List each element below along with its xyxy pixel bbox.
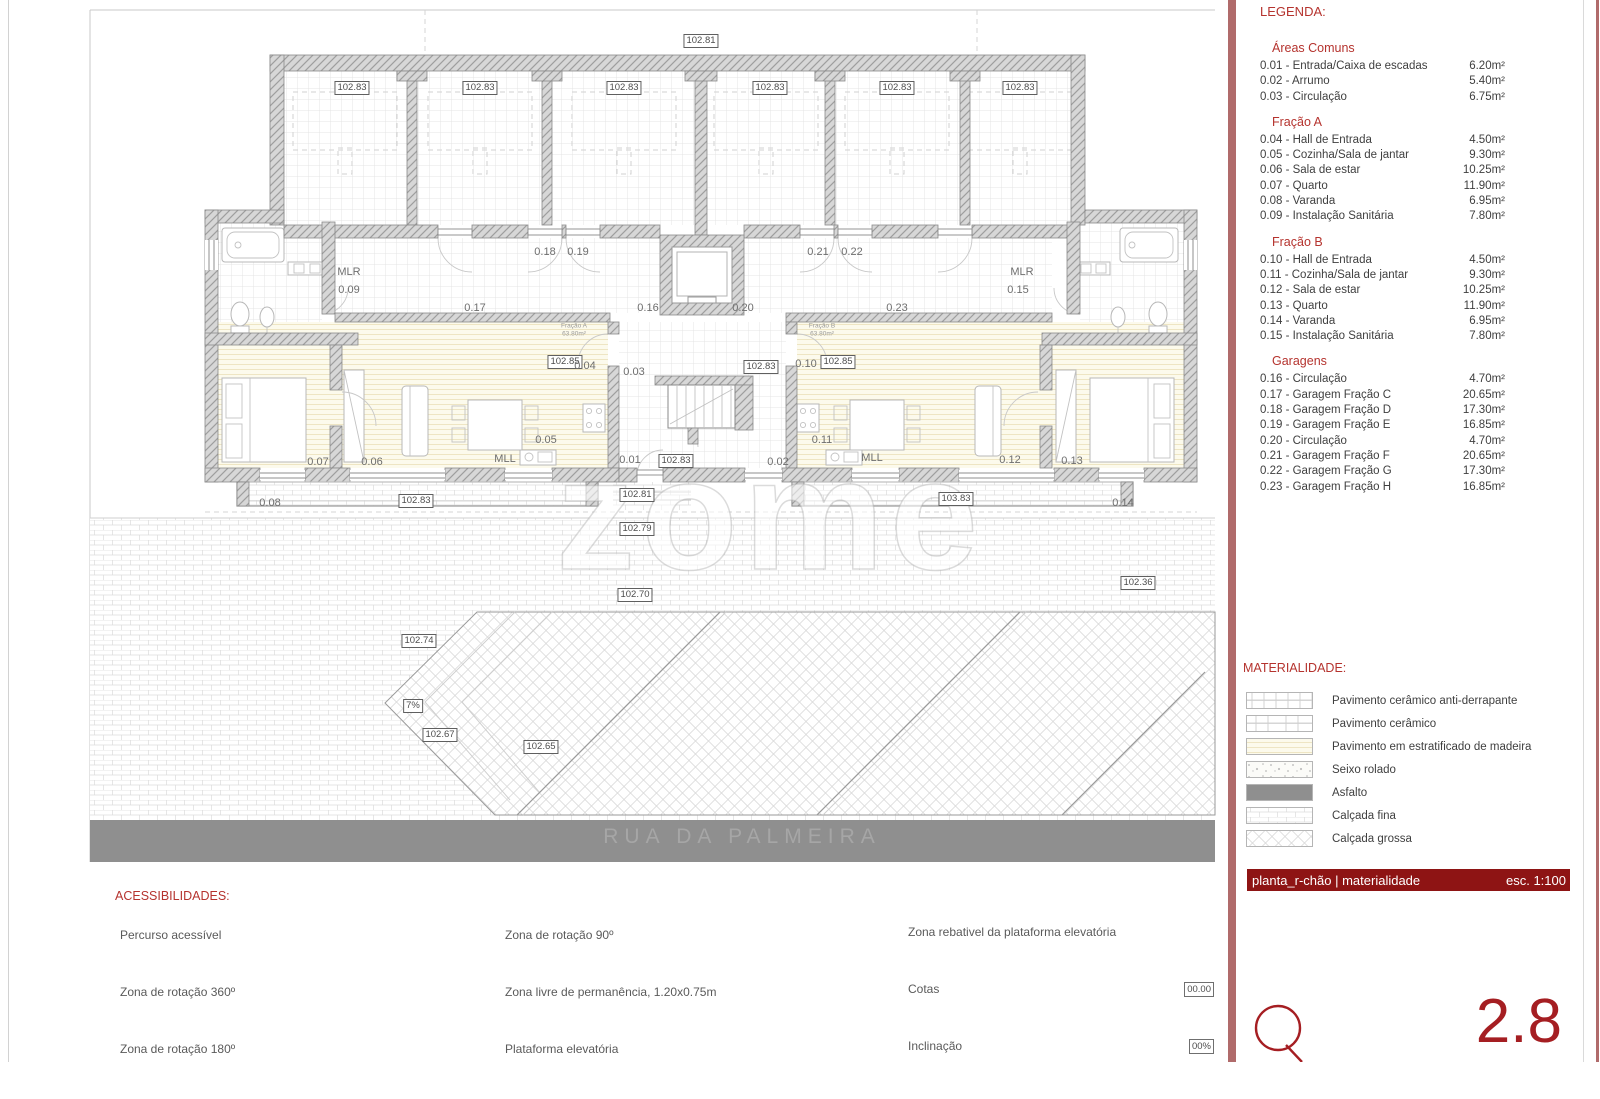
legend-item: 0.05 - Cozinha/Sala de jantar9.30m² bbox=[1260, 148, 1505, 163]
material-item: Seixo rolado bbox=[1246, 761, 1576, 778]
legend-item: 0.13 - Quarto11.90m² bbox=[1260, 299, 1505, 314]
legend-item-area: 4.70m² bbox=[1469, 434, 1505, 449]
legend-item-area: 10.25m² bbox=[1463, 283, 1505, 298]
accessibility-item-label: Inclinação bbox=[908, 1039, 962, 1053]
value-box: 00% bbox=[1189, 1039, 1214, 1054]
legend-item: 0.09 - Instalação Sanitária7.80m² bbox=[1260, 209, 1505, 224]
material-swatch-brick bbox=[1246, 807, 1313, 824]
legend-item: 0.08 - Varanda6.95m² bbox=[1260, 194, 1505, 209]
legend-item-label: 0.17 - Garagem Fração C bbox=[1260, 388, 1391, 403]
material-label: Calçada grossa bbox=[1332, 833, 1412, 845]
legend-item-area: 9.30m² bbox=[1469, 148, 1505, 163]
legend-section-title: Fração B bbox=[1272, 234, 1505, 250]
material-swatch-wood bbox=[1246, 738, 1313, 755]
accessibility-item-label: Zona rebativel da plataforma elevatória bbox=[908, 925, 1116, 939]
legend-section-title: Garagens bbox=[1272, 353, 1505, 369]
legend-sections: Áreas Comuns0.01 - Entrada/Caixa de esca… bbox=[1260, 40, 1505, 504]
accessibility-item: Zona de rotação 90º bbox=[505, 928, 865, 942]
legend-item-label: 0.19 - Garagem Fração E bbox=[1260, 418, 1390, 433]
legend-item-label: 0.23 - Garagem Fração H bbox=[1260, 480, 1391, 495]
legend-item: 0.16 - Circulação4.70m² bbox=[1260, 372, 1505, 387]
accessibility-item: Cotas00.00 bbox=[908, 982, 1214, 996]
accessibility-item: Zona de rotação 360º bbox=[120, 985, 450, 999]
materials-title: MATERIALIDADE: bbox=[1243, 661, 1346, 675]
legend-item-area: 16.85m² bbox=[1463, 480, 1505, 495]
material-swatch-tileL bbox=[1246, 692, 1313, 709]
legend-item-label: 0.07 - Quarto bbox=[1260, 179, 1328, 194]
legend-item: 0.01 - Entrada/Caixa de escadas6.20m² bbox=[1260, 59, 1505, 74]
panel-divider bbox=[1228, 0, 1236, 1062]
accessibility-item: Inclinação00% bbox=[908, 1039, 1214, 1053]
q-logo-icon bbox=[1250, 1000, 1310, 1062]
legend-item: 0.11 - Cozinha/Sala de jantar9.30m² bbox=[1260, 268, 1505, 283]
panel-edge-line bbox=[1583, 0, 1584, 1062]
legend-item-area: 9.30m² bbox=[1469, 268, 1505, 283]
legend-item-label: 0.12 - Sala de estar bbox=[1260, 283, 1360, 298]
legend-item-label: 0.22 - Garagem Fração G bbox=[1260, 464, 1392, 479]
legend-item-area: 10.25m² bbox=[1463, 163, 1505, 178]
legend-item-area: 4.70m² bbox=[1469, 372, 1505, 387]
legend-item-label: 0.15 - Instalação Sanitária bbox=[1260, 329, 1394, 344]
legend-item-label: 0.08 - Varanda bbox=[1260, 194, 1335, 209]
drawing-title: planta_r-chão | materialidade bbox=[1247, 873, 1420, 888]
legend-item: 0.10 - Hall de Entrada4.50m² bbox=[1260, 253, 1505, 268]
material-swatch-speckle bbox=[1246, 761, 1313, 778]
drawing-scale: esc. 1:100 bbox=[1506, 873, 1570, 888]
legend-item-label: 0.13 - Quarto bbox=[1260, 299, 1328, 314]
legend-item-label: 0.11 - Cozinha/Sala de jantar bbox=[1260, 268, 1408, 283]
legend-item-area: 11.90m² bbox=[1464, 299, 1505, 314]
material-swatch-diamond bbox=[1246, 830, 1313, 847]
accessibility-item: Zona de rotação 180º bbox=[120, 1042, 450, 1056]
legend-item: 0.22 - Garagem Fração G17.30m² bbox=[1260, 464, 1505, 479]
material-label: Calçada fina bbox=[1332, 810, 1396, 822]
legend-item-area: 20.65m² bbox=[1463, 388, 1505, 403]
watermark: zome bbox=[330, 425, 1210, 606]
legend-item-area: 5.40m² bbox=[1469, 74, 1505, 89]
legend-item: 0.12 - Sala de estar10.25m² bbox=[1260, 283, 1505, 298]
material-label: Asfalto bbox=[1332, 787, 1367, 799]
legend-item-area: 20.65m² bbox=[1463, 449, 1505, 464]
sheet-edge-line bbox=[8, 0, 9, 1062]
legend-item-area: 6.95m² bbox=[1469, 194, 1505, 209]
sheet-number: 2.8 bbox=[1440, 988, 1562, 1056]
accessibility-item: Plataforma elevatória bbox=[505, 1042, 865, 1056]
legend-item-label: 0.06 - Sala de estar bbox=[1260, 163, 1360, 178]
legend-item: 0.04 - Hall de Entrada4.50m² bbox=[1260, 133, 1505, 148]
legend-item-area: 7.80m² bbox=[1469, 329, 1505, 344]
legend-item-label: 0.03 - Circulação bbox=[1260, 90, 1347, 105]
accessibility-item: Percurso acessível bbox=[120, 928, 450, 942]
legend-item-area: 6.95m² bbox=[1469, 314, 1505, 329]
legend-item: 0.06 - Sala de estar10.25m² bbox=[1260, 163, 1505, 178]
legend-item-area: 17.30m² bbox=[1463, 403, 1505, 418]
legend-item-label: 0.04 - Hall de Entrada bbox=[1260, 133, 1372, 148]
material-label: Pavimento cerâmico bbox=[1332, 718, 1436, 730]
legend-item: 0.03 - Circulação6.75m² bbox=[1260, 90, 1505, 105]
legend-item: 0.20 - Circulação4.70m² bbox=[1260, 434, 1505, 449]
legend-item-label: 0.02 - Arrumo bbox=[1260, 74, 1330, 89]
legend-item: 0.18 - Garagem Fração D17.30m² bbox=[1260, 403, 1505, 418]
legend-section: Áreas Comuns0.01 - Entrada/Caixa de esca… bbox=[1260, 40, 1505, 105]
material-item: Calçada grossa bbox=[1246, 830, 1576, 847]
material-item: Pavimento em estratificado de madeira bbox=[1246, 738, 1576, 755]
legend-item-area: 4.50m² bbox=[1469, 133, 1505, 148]
legend-item: 0.19 - Garagem Fração E16.85m² bbox=[1260, 418, 1505, 433]
legend-section: Fração A0.04 - Hall de Entrada4.50m²0.05… bbox=[1260, 114, 1505, 225]
legend-item-label: 0.14 - Varanda bbox=[1260, 314, 1335, 329]
legend-item-label: 0.21 - Garagem Fração F bbox=[1260, 449, 1390, 464]
legend-item-label: 0.01 - Entrada/Caixa de escadas bbox=[1260, 59, 1428, 74]
material-item: Pavimento cerâmico anti-derrapante bbox=[1246, 692, 1576, 709]
material-item: Asfalto bbox=[1246, 784, 1576, 801]
legend-item-label: 0.10 - Hall de Entrada bbox=[1260, 253, 1372, 268]
legend-section-title: Áreas Comuns bbox=[1272, 40, 1505, 56]
legend-item: 0.07 - Quarto11.90m² bbox=[1260, 179, 1505, 194]
legend-item-area: 4.50m² bbox=[1469, 253, 1505, 268]
accessibility-column-1: Percurso acessívelZona de rotação 360ºZo… bbox=[120, 928, 450, 1099]
accessibility-column-2: Zona de rotação 90ºZona livre de permanê… bbox=[505, 928, 865, 1099]
accessibility-item-label: Cotas bbox=[908, 982, 939, 996]
material-item: Calçada fina bbox=[1246, 807, 1576, 824]
legend-item: 0.23 - Garagem Fração H16.85m² bbox=[1260, 480, 1505, 495]
legend-item-label: 0.18 - Garagem Fração D bbox=[1260, 403, 1391, 418]
accessibility-item: Zona rebativel da plataforma elevatória bbox=[908, 925, 1214, 939]
material-item: Pavimento cerâmico bbox=[1246, 715, 1576, 732]
material-label: Pavimento em estratificado de madeira bbox=[1332, 741, 1531, 753]
accessibility-title: ACESSIBILIDADES: bbox=[115, 889, 230, 903]
sheet-right-border bbox=[1596, 0, 1599, 1062]
accessibility-item: Zona livre de permanência, 1.20x0.75m bbox=[505, 985, 865, 999]
legend-item: 0.21 - Garagem Fração F20.65m² bbox=[1260, 449, 1505, 464]
legend-item: 0.15 - Instalação Sanitária7.80m² bbox=[1260, 329, 1505, 344]
legend-item-label: 0.20 - Circulação bbox=[1260, 434, 1347, 449]
legend-section-title: Fração A bbox=[1272, 114, 1505, 130]
value-box: 00.00 bbox=[1184, 982, 1214, 997]
legend-section: Fração B0.10 - Hall de Entrada4.50m²0.11… bbox=[1260, 234, 1505, 345]
legend-item-area: 17.30m² bbox=[1463, 464, 1505, 479]
legend-item-area: 11.90m² bbox=[1464, 179, 1505, 194]
legend-item-label: 0.16 - Circulação bbox=[1260, 372, 1347, 387]
drawing-title-bar: planta_r-chão | materialidade esc. 1:100 bbox=[1247, 869, 1570, 891]
legend-item: 0.17 - Garagem Fração C20.65m² bbox=[1260, 388, 1505, 403]
material-list: Pavimento cerâmico anti-derrapantePavime… bbox=[1246, 692, 1576, 853]
material-label: Seixo rolado bbox=[1332, 764, 1396, 776]
legend-item-label: 0.05 - Cozinha/Sala de jantar bbox=[1260, 148, 1409, 163]
legend-section: Garagens0.16 - Circulação4.70m²0.17 - Ga… bbox=[1260, 353, 1505, 494]
accessibility-column-3: Zona rebativel da plataforma elevatóriaC… bbox=[908, 925, 1214, 1096]
material-label: Pavimento cerâmico anti-derrapante bbox=[1332, 695, 1517, 707]
material-swatch-tileM bbox=[1246, 715, 1313, 732]
street-name: RUA DA PALMEIRA bbox=[603, 825, 881, 848]
legend-item: 0.02 - Arrumo5.40m² bbox=[1260, 74, 1505, 89]
legend-item-area: 7.80m² bbox=[1469, 209, 1505, 224]
legend-item-area: 6.75m² bbox=[1469, 90, 1505, 105]
legend-item-area: 16.85m² bbox=[1463, 418, 1505, 433]
legend-item: 0.14 - Varanda6.95m² bbox=[1260, 314, 1505, 329]
legend-item-label: 0.09 - Instalação Sanitária bbox=[1260, 209, 1394, 224]
material-swatch-asphalt bbox=[1246, 784, 1313, 801]
legend-item-area: 6.20m² bbox=[1469, 59, 1505, 74]
legend-title: LEGENDA: bbox=[1260, 4, 1326, 19]
